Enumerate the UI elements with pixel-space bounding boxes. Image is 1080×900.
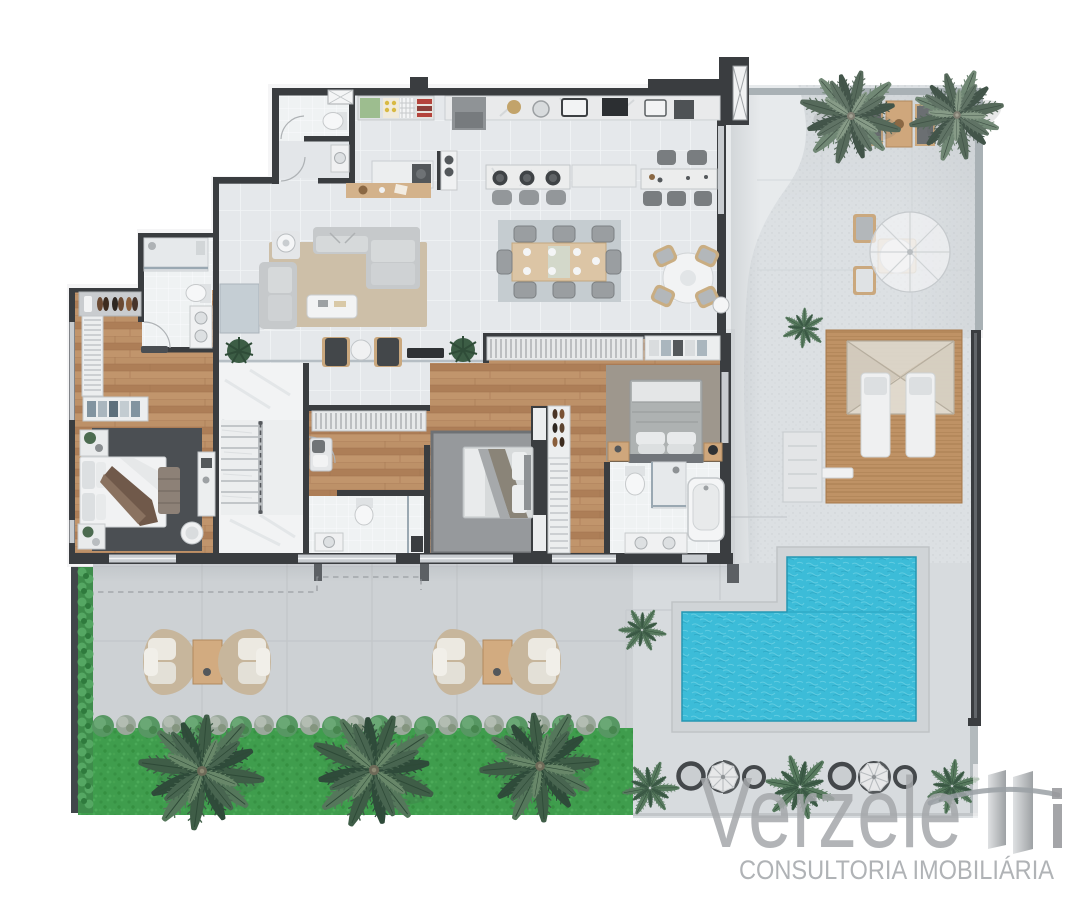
svg-text:CONSULTORIA IMOBILIÁRIA: CONSULTORIA IMOBILIÁRIA bbox=[739, 855, 1054, 885]
svg-text:Verzele: Verzele bbox=[700, 757, 962, 869]
